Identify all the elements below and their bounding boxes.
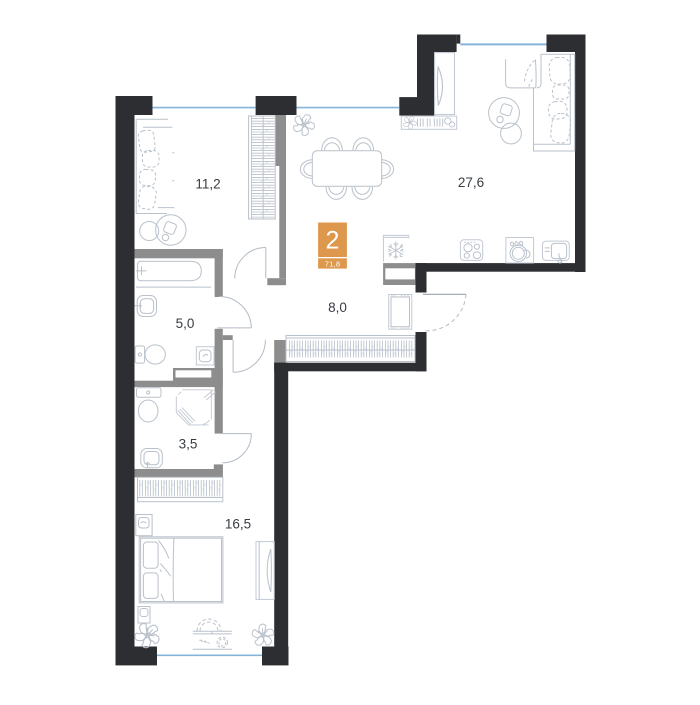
svg-text:11,2: 11,2 (195, 177, 220, 192)
svg-text:27,6: 27,6 (458, 175, 484, 190)
svg-text:16,5: 16,5 (225, 517, 251, 532)
svg-text:8,0: 8,0 (328, 300, 347, 315)
svg-text:3,5: 3,5 (179, 437, 198, 452)
svg-text:5,0: 5,0 (176, 316, 195, 331)
svg-text:2: 2 (326, 227, 340, 255)
svg-text:71,8: 71,8 (325, 259, 340, 268)
